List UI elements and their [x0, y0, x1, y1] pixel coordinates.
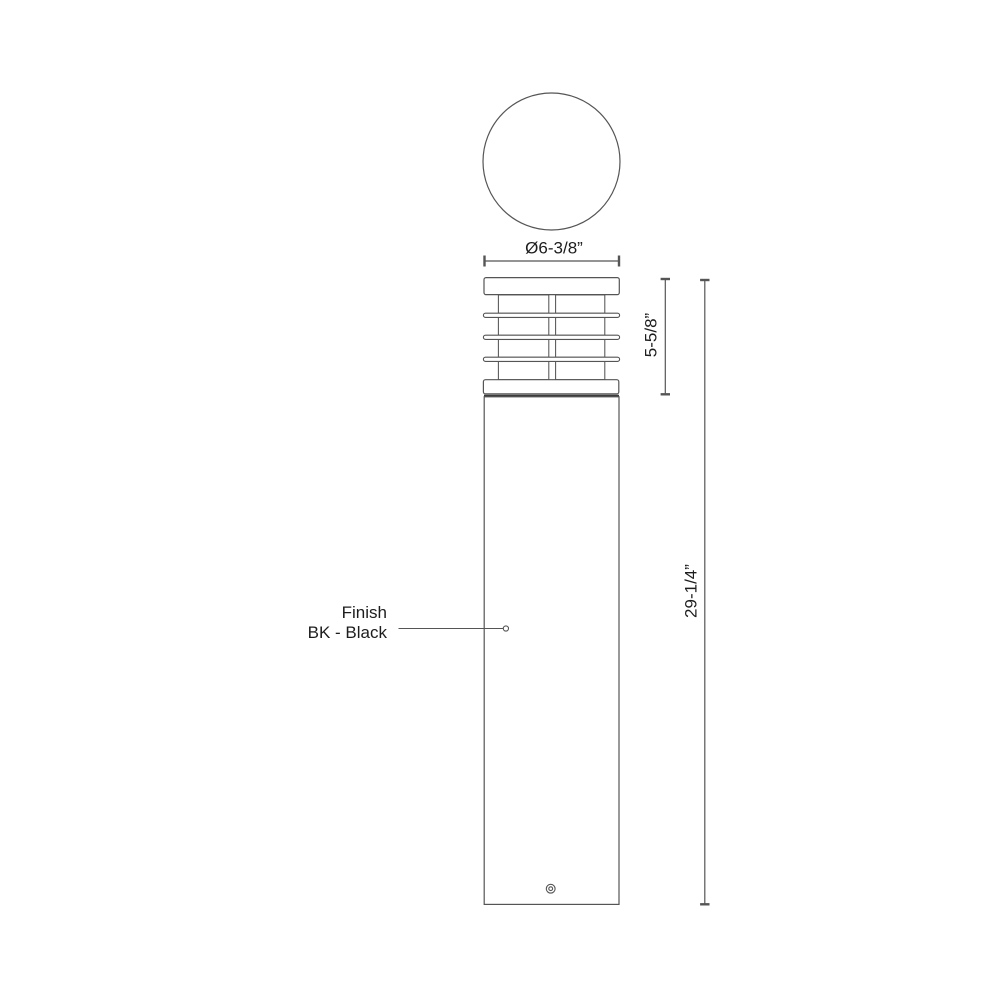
svg-text:Finish: Finish [342, 603, 387, 622]
svg-text:29-1/4”: 29-1/4” [682, 564, 701, 618]
svg-text:BK - Black: BK - Black [308, 623, 388, 642]
svg-text:Ø6-3/8”: Ø6-3/8” [525, 239, 583, 258]
svg-text:5-5/8”: 5-5/8” [642, 312, 661, 357]
